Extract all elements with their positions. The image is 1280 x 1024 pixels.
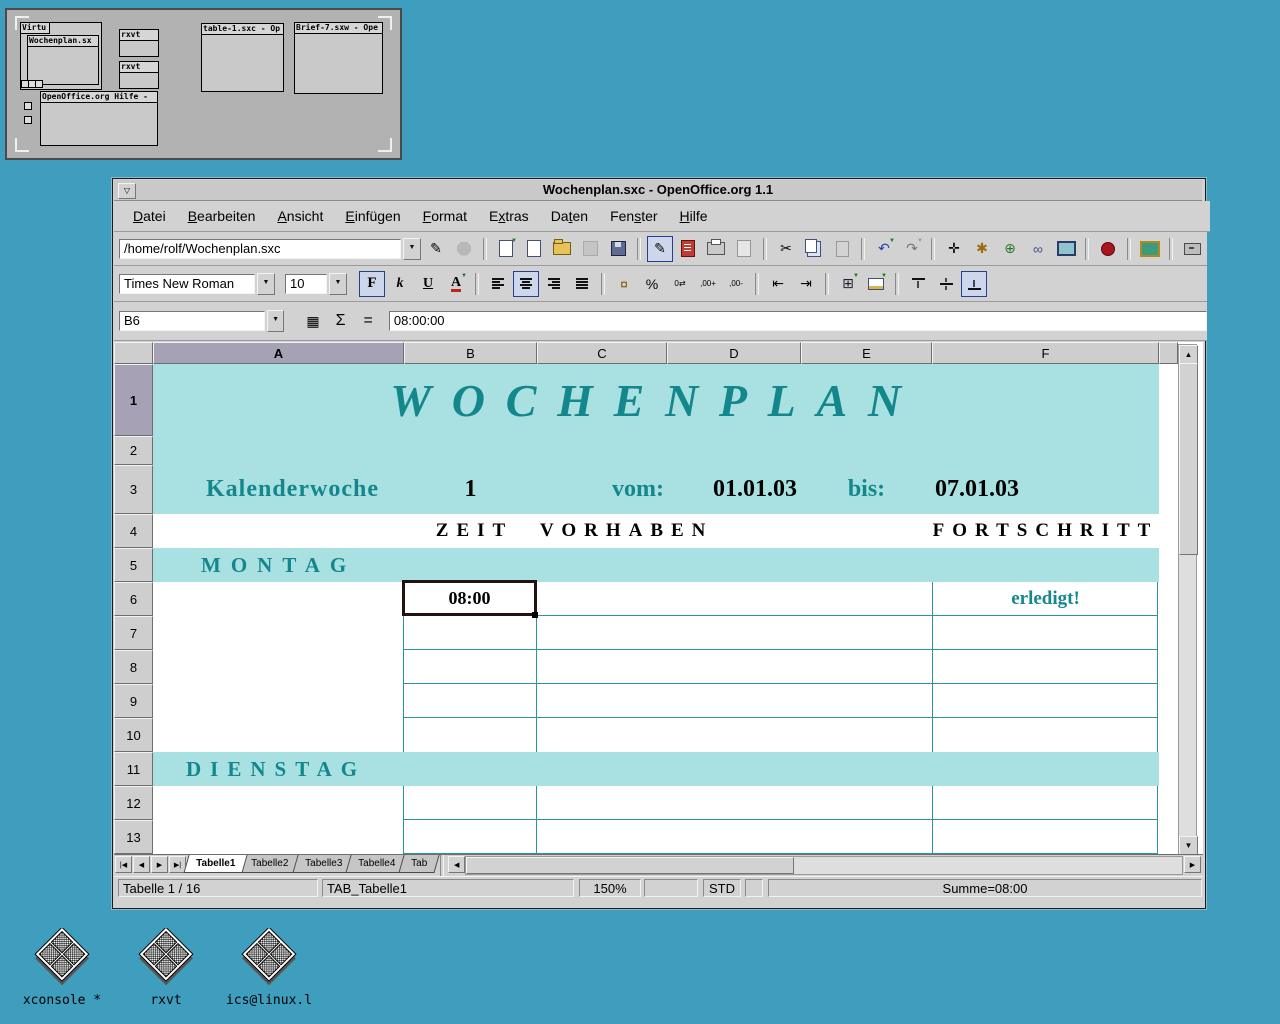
- gridline: [403, 649, 1158, 650]
- save-button: [577, 236, 603, 262]
- left-arrow-icon: ◀: [454, 861, 459, 869]
- pager-window-title: Wochenplan.sx: [28, 36, 98, 47]
- url-dropdown-button[interactable]: ▼: [403, 238, 421, 260]
- pager-window-title: OpenOffice.org Hilfe -: [41, 92, 157, 103]
- up-arrow-icon: ▲: [1185, 350, 1193, 359]
- function-button[interactable]: =: [355, 308, 381, 334]
- virtual-desktop-pager[interactable]: Virtu Wochenplan.sx rxvt rxvt table-1.sx…: [5, 8, 402, 160]
- sheet-tab-tabelle2[interactable]: Tabelle2: [239, 855, 301, 873]
- dropdown-icon: ▼: [272, 316, 279, 323]
- menu-format[interactable]: Format: [412, 208, 478, 224]
- save-icon: [583, 241, 598, 256]
- desktop-icon-label: rxvt: [118, 993, 214, 1008]
- toolbar-separator: [475, 273, 479, 295]
- spreadsheet-area: ABCDEF 12345678910111213 WOCHENPLAN Kale…: [114, 342, 1203, 854]
- status-zoom-level[interactable]: 150%: [579, 879, 641, 897]
- equals-icon: =: [364, 312, 373, 330]
- align-top-icon: [912, 278, 925, 290]
- currency-format-button[interactable]: ¤: [611, 271, 637, 297]
- column-header-C[interactable]: C: [537, 342, 667, 364]
- toolbar-separator: [755, 273, 759, 295]
- toolbar-separator: [825, 273, 829, 295]
- cell-kalenderwoche-label: Kalenderwoche: [206, 465, 379, 514]
- add-decimal-button[interactable]: ,00+: [695, 271, 721, 297]
- pager-window-title: table-1.sxc - Op: [202, 24, 283, 35]
- desktop-icon-xconsole[interactable]: xconsole *: [14, 928, 110, 1008]
- align-bottom-button[interactable]: [961, 271, 987, 297]
- standard-format-button[interactable]: 0⇄: [667, 271, 693, 297]
- stylist-button[interactable]: ✱: [969, 236, 995, 262]
- cell-erledigt: erledigt!: [932, 582, 1159, 616]
- menu-hilfe[interactable]: Hilfe: [669, 208, 719, 224]
- column-header-filler: [1159, 342, 1178, 364]
- cell-title: WOCHENPLAN: [153, 364, 1159, 436]
- bold-icon: F: [367, 275, 376, 292]
- url-input[interactable]: /home/rolf/Wochenplan.sxc: [119, 239, 401, 259]
- row-header-2[interactable]: 2: [114, 436, 153, 465]
- cell-kalenderwoche-value: 1: [404, 465, 537, 514]
- font-color-icon: A: [451, 276, 461, 292]
- hscroll-left-button[interactable]: ◀: [448, 856, 465, 873]
- scroll-up-button[interactable]: ▲: [1179, 345, 1198, 364]
- font-name-input[interactable]: Times New Roman: [119, 274, 255, 294]
- paste-icon: [836, 241, 849, 257]
- left-arrow-icon: ◀: [139, 861, 144, 869]
- toolbar-separator: [763, 238, 767, 260]
- first-sheet-button[interactable]: |◀: [115, 856, 132, 873]
- formula-bar: B6 ▼ ▦ Σ = 08:00:00: [114, 302, 1207, 341]
- underline-button[interactable]: U: [415, 271, 441, 297]
- datasources-button[interactable]: [1179, 236, 1205, 262]
- save-as-icon: [611, 241, 626, 256]
- font-size-input[interactable]: 10: [285, 274, 327, 294]
- paste-button: [829, 236, 855, 262]
- export-pdf-button[interactable]: [675, 236, 701, 262]
- right-arrow-icon: ▶: [1190, 861, 1195, 869]
- menu-fenster[interactable]: Fenster: [599, 208, 668, 224]
- copy-button[interactable]: [801, 236, 827, 262]
- cut-button[interactable]: ✂: [773, 236, 799, 262]
- status-sum[interactable]: Summe=08:00: [768, 879, 1202, 897]
- column-header-F[interactable]: F: [932, 342, 1159, 364]
- vertical-scrollbar[interactable]: ▲ ▼: [1178, 344, 1197, 854]
- italic-button[interactable]: k: [387, 271, 413, 297]
- window-icon: [240, 928, 298, 986]
- row-header-7[interactable]: 7: [114, 616, 153, 650]
- font-name-dropdown[interactable]: ▼: [257, 273, 275, 295]
- borders-button[interactable]: ⊞▼: [835, 271, 861, 297]
- horizontal-scrollbar[interactable]: [465, 856, 1183, 875]
- openoffice-calc-window: ▽ Wochenplan.sxc - OpenOffice.org 1.1 Da…: [112, 178, 1206, 909]
- font-size-dropdown[interactable]: ▼: [329, 273, 347, 295]
- currency-icon: ¤: [620, 276, 628, 292]
- gridline: [403, 819, 1158, 820]
- window-icon: [137, 928, 195, 986]
- scroll-down-button[interactable]: ▼: [1179, 836, 1198, 855]
- row-header-8[interactable]: 8: [114, 650, 153, 684]
- page-preview-icon: [737, 240, 751, 257]
- cell-zeit-header: ZEIT: [404, 514, 537, 548]
- underline-icon: U: [423, 276, 433, 292]
- sum-icon: Σ: [336, 312, 346, 330]
- vertical-scroll-thumb[interactable]: [1179, 363, 1198, 555]
- previous-sheet-button[interactable]: ◀: [133, 856, 150, 873]
- status-empty-field: [644, 879, 698, 897]
- down-arrow-icon: ▼: [1185, 841, 1193, 850]
- pager-window-title: rxvt: [120, 62, 158, 73]
- toolbar-separator: [1085, 238, 1089, 260]
- bold-button[interactable]: F: [359, 271, 385, 297]
- align-middle-icon: [940, 278, 953, 290]
- dropdown-icon: ▼: [461, 273, 467, 279]
- stop-icon: [457, 242, 471, 256]
- menu-mnemonic: F: [423, 208, 432, 224]
- column-header-D[interactable]: D: [667, 342, 801, 364]
- cell-grid[interactable]: WOCHENPLAN Kalenderwoche 1 vom: 01.01.03…: [153, 364, 1159, 854]
- pager-window-hilfe[interactable]: OpenOffice.org Hilfe -: [40, 91, 158, 146]
- zoom-button[interactable]: [1053, 236, 1079, 262]
- screen-icon: [1057, 241, 1076, 256]
- gridline: [932, 582, 933, 752]
- cell-vom-value: 01.01.03: [667, 465, 797, 514]
- hyperlink-icon: ∞: [1033, 241, 1043, 257]
- menu-ansicht[interactable]: Ansicht: [266, 208, 334, 224]
- dropdown-icon: ▼: [853, 273, 859, 279]
- status-empty-field: [745, 879, 763, 897]
- title-bar[interactable]: ▽ Wochenplan.sxc - OpenOffice.org 1.1: [114, 180, 1202, 201]
- select-all-corner[interactable]: [114, 342, 153, 364]
- navigator-icon: ✛: [948, 240, 960, 257]
- gridline: [1157, 582, 1158, 752]
- pager-window-rxvt-1[interactable]: rxvt: [119, 29, 159, 57]
- cell-bis-value: 07.01.03: [935, 465, 1019, 514]
- cell-fortschritt-header: FORTSCHRITT: [932, 514, 1159, 548]
- formula-input[interactable]: 08:00:00: [389, 311, 1207, 331]
- horizontal-scroll-thumb[interactable]: [466, 857, 794, 874]
- page-preview-button: [731, 236, 757, 262]
- decrease-indent-icon: ⇤: [772, 275, 784, 292]
- band-row2: [153, 436, 1159, 465]
- decrease-indent-button[interactable]: ⇤: [765, 271, 791, 297]
- desktop-icon-label: xconsole *: [14, 993, 110, 1008]
- row-header-13[interactable]: 13: [114, 820, 153, 854]
- standard-format-icon: 0⇄: [674, 279, 685, 288]
- align-center-button[interactable]: [513, 271, 539, 297]
- edit-file-icon: ✎: [430, 240, 442, 257]
- toolbar-separator: [895, 273, 899, 295]
- sheet-tab-label: Tabelle4: [358, 858, 395, 869]
- pager-iconified-window[interactable]: [24, 102, 32, 110]
- pager-button[interactable]: [35, 80, 43, 88]
- dropdown-icon: ▼: [511, 238, 517, 244]
- undo-button[interactable]: ↶▼: [871, 236, 897, 262]
- align-justify-button[interactable]: [569, 271, 595, 297]
- first-sheet-icon: |◀: [120, 861, 127, 869]
- sheet-tab-label: Tab: [411, 858, 427, 869]
- dropdown-icon: ▼: [409, 244, 416, 251]
- format-toolbar: Times New Roman ▼ 10 ▼ F k U A▼ ¤ % 0⇄ ,…: [114, 266, 1207, 302]
- function-wizard-button[interactable]: ▦: [300, 308, 326, 334]
- menu-mnemonic: D: [133, 208, 143, 224]
- align-justify-icon: [576, 278, 589, 289]
- cut-icon: ✂: [780, 240, 792, 257]
- dropdown-icon: ▼: [263, 279, 270, 286]
- navigator-button[interactable]: ✛: [941, 236, 967, 262]
- tabbar-separator: [440, 855, 444, 877]
- toolbar-separator: [861, 238, 865, 260]
- status-bar: Tabelle 1 / 16 TAB_Tabelle1 150% STD Sum…: [114, 876, 1203, 901]
- function-toolbar: /home/rolf/Wochenplan.sxc ▼ ✎ ▼ ✎ ✂ ↶▼ ↷…: [114, 232, 1207, 266]
- dropdown-icon: ▼: [889, 238, 895, 244]
- gallery-button[interactable]: ⊕: [997, 236, 1023, 262]
- align-top-button[interactable]: [905, 271, 931, 297]
- pager-corner: [378, 138, 392, 152]
- menu-mnemonic: B: [188, 208, 197, 224]
- desktop-icon-linux[interactable]: ics@linux.l: [221, 928, 317, 1008]
- selection-handle[interactable]: [532, 612, 538, 618]
- menu-bar: DateiBearbeitenAnsichtEinfügenFormatExtr…: [114, 201, 1210, 232]
- pager-window-table[interactable]: table-1.sxc - Op: [201, 23, 284, 92]
- row-header-6[interactable]: 6: [114, 582, 153, 616]
- gridline: [403, 786, 404, 854]
- menu-extras[interactable]: Extras: [478, 208, 540, 224]
- align-right-icon: [548, 278, 561, 289]
- background-color-button[interactable]: ▼: [863, 271, 889, 297]
- edit-mode-icon: ✎: [654, 240, 666, 257]
- new-document-button[interactable]: [521, 236, 547, 262]
- gallery-icon: ⊕: [1004, 240, 1016, 257]
- desktop-icon-rxvt[interactable]: rxvt: [118, 928, 214, 1008]
- next-sheet-button[interactable]: ▶: [151, 856, 168, 873]
- pager-iconified-window[interactable]: [24, 116, 32, 124]
- row-header-3[interactable]: 3: [114, 465, 153, 514]
- align-left-button[interactable]: [485, 271, 511, 297]
- font-color-button[interactable]: A▼: [443, 271, 469, 297]
- sheet-tab-tab[interactable]: Tab: [398, 855, 439, 873]
- percent-icon: %: [646, 276, 658, 292]
- percent-format-button[interactable]: %: [639, 271, 665, 297]
- desktop-icon-label: ics@linux.l: [221, 993, 317, 1008]
- pager-window-title: Virtu: [21, 23, 50, 34]
- window-menu-button[interactable]: ▽: [118, 183, 136, 199]
- record-dot-icon: [1101, 242, 1115, 256]
- toolbar-separator: [637, 238, 641, 260]
- cell-vorhaben-header: VORHABEN: [540, 514, 713, 548]
- gridline: [403, 717, 1158, 718]
- save-as-button[interactable]: [605, 236, 631, 262]
- redo-button: ↷▼: [899, 236, 925, 262]
- increase-indent-button[interactable]: ⇥: [793, 271, 819, 297]
- status-insert-mode[interactable]: STD: [703, 879, 741, 897]
- gridline: [403, 683, 1158, 684]
- status-sheet-info: Tabelle 1 / 16: [118, 879, 318, 897]
- selected-cell-B6[interactable]: 08:00: [402, 580, 537, 616]
- window-menu-icon: ▽: [124, 186, 130, 195]
- cell-reference-dropdown[interactable]: ▼: [267, 310, 285, 332]
- italic-icon: k: [397, 276, 404, 292]
- window-title: Wochenplan.sxc - OpenOffice.org 1.1: [114, 180, 1202, 200]
- dropdown-icon: ▼: [335, 279, 342, 286]
- gridline: [932, 786, 933, 854]
- edit-file-button[interactable]: ✎: [423, 236, 449, 262]
- row-header-5[interactable]: 5: [114, 548, 153, 582]
- toolbar-separator: [931, 238, 935, 260]
- add-decimal-icon: ,00+: [700, 279, 716, 288]
- background-color-icon: [868, 278, 884, 290]
- menu-mnemonic: x: [498, 208, 505, 224]
- new-from-template-button[interactable]: ▼: [493, 236, 519, 262]
- dropdown-icon: ▼: [881, 273, 887, 279]
- copy-icon: [805, 239, 817, 253]
- menu-mnemonic: t: [569, 208, 573, 224]
- window-icon: [33, 928, 91, 986]
- pager-window-brief[interactable]: Brief-7.sxw - Ope: [294, 22, 383, 94]
- sheet-tab-label: Tabelle1: [196, 858, 235, 869]
- increase-indent-icon: ⇥: [800, 275, 812, 292]
- sum-button[interactable]: Σ: [328, 308, 354, 334]
- delete-decimal-button[interactable]: ,00-: [723, 271, 749, 297]
- pager-window-rxvt-2[interactable]: rxvt: [119, 61, 159, 89]
- row-header-4[interactable]: 4: [114, 514, 153, 548]
- cell-montag-header: MONTAG: [201, 548, 356, 582]
- align-middle-button[interactable]: [933, 271, 959, 297]
- stylist-icon: ✱: [976, 240, 988, 257]
- align-right-button[interactable]: [541, 271, 567, 297]
- menu-mnemonic: s: [634, 208, 641, 224]
- cell-vom-label: vom:: [537, 465, 664, 514]
- gridline: [1157, 786, 1158, 854]
- print-button[interactable]: [703, 236, 729, 262]
- sheet-tabs: Tabelle1Tabelle2Tabelle3Tabelle4Tab: [190, 855, 437, 874]
- column-header-A[interactable]: A: [153, 342, 404, 364]
- function-wizard-icon: ▦: [306, 313, 319, 330]
- align-bottom-icon: [968, 278, 981, 290]
- datasource-icon: [1184, 243, 1201, 255]
- pdf-icon: [681, 240, 695, 257]
- insert-graphics-button[interactable]: [1137, 236, 1163, 262]
- pager-corner: [15, 138, 29, 152]
- sheet-tab-label: Tabelle3: [305, 858, 342, 869]
- toolbar-separator: [483, 238, 487, 260]
- align-left-icon: [492, 278, 505, 289]
- pager-window-title: rxvt: [120, 30, 158, 41]
- last-sheet-icon: ▶|: [174, 861, 181, 869]
- row-header-9[interactable]: 9: [114, 684, 153, 718]
- open-button[interactable]: [549, 236, 575, 262]
- printer-icon: [707, 242, 725, 255]
- hscroll-right-button[interactable]: ▶: [1184, 856, 1201, 873]
- row-header-10[interactable]: 10: [114, 718, 153, 752]
- dropdown-icon: ▼: [917, 238, 923, 244]
- cell-reference-box[interactable]: B6: [119, 311, 265, 331]
- edit-mode-button[interactable]: ✎: [647, 236, 673, 262]
- menu-mnemonic: E: [345, 208, 354, 224]
- menu-bearbeiten[interactable]: Bearbeiten: [177, 208, 267, 224]
- pager-window-wochenplan[interactable]: Wochenplan.sx: [27, 35, 99, 85]
- toolbar-separator: [1127, 238, 1131, 260]
- picture-icon: [1140, 241, 1160, 257]
- toolbar-separator: [1169, 238, 1173, 260]
- new-document-icon: [527, 240, 541, 257]
- toolbar-separator: [601, 273, 605, 295]
- right-arrow-icon: ▶: [157, 861, 162, 869]
- menu-datei[interactable]: Datei: [122, 208, 177, 224]
- menu-mnemonic: H: [680, 208, 690, 224]
- sheet-tab-label: Tabelle2: [251, 858, 288, 869]
- column-header-E[interactable]: E: [801, 342, 932, 364]
- menu-daten[interactable]: Daten: [540, 208, 599, 224]
- stop-button: [451, 236, 477, 262]
- column-header-B[interactable]: B: [404, 342, 537, 364]
- align-center-icon: [520, 278, 533, 289]
- row-header-11[interactable]: 11: [114, 752, 153, 786]
- menu-einfügen[interactable]: Einfügen: [334, 208, 411, 224]
- cell-dienstag-header: DIENSTAG: [186, 752, 366, 786]
- row-header-12[interactable]: 12: [114, 786, 153, 820]
- sheet-tab-bar: |◀ ◀ ▶ ▶| Tabelle1Tabelle2Tabelle3Tabell…: [114, 854, 1203, 874]
- sheet-tab-tabelle1[interactable]: Tabelle1: [183, 855, 247, 873]
- row-header-1[interactable]: 1: [114, 364, 153, 436]
- delete-decimal-icon: ,00-: [729, 279, 743, 288]
- gridline: [536, 786, 537, 854]
- open-folder-icon: [553, 242, 571, 255]
- hyperlink-button[interactable]: ∞: [1025, 236, 1051, 262]
- pager-window-title: Brief-7.sxw - Ope: [295, 23, 382, 34]
- record-macro-button[interactable]: [1095, 236, 1121, 262]
- menu-mnemonic: A: [277, 208, 286, 224]
- cell-bis-label: bis:: [801, 465, 932, 514]
- status-page-style: TAB_Tabelle1: [322, 879, 574, 897]
